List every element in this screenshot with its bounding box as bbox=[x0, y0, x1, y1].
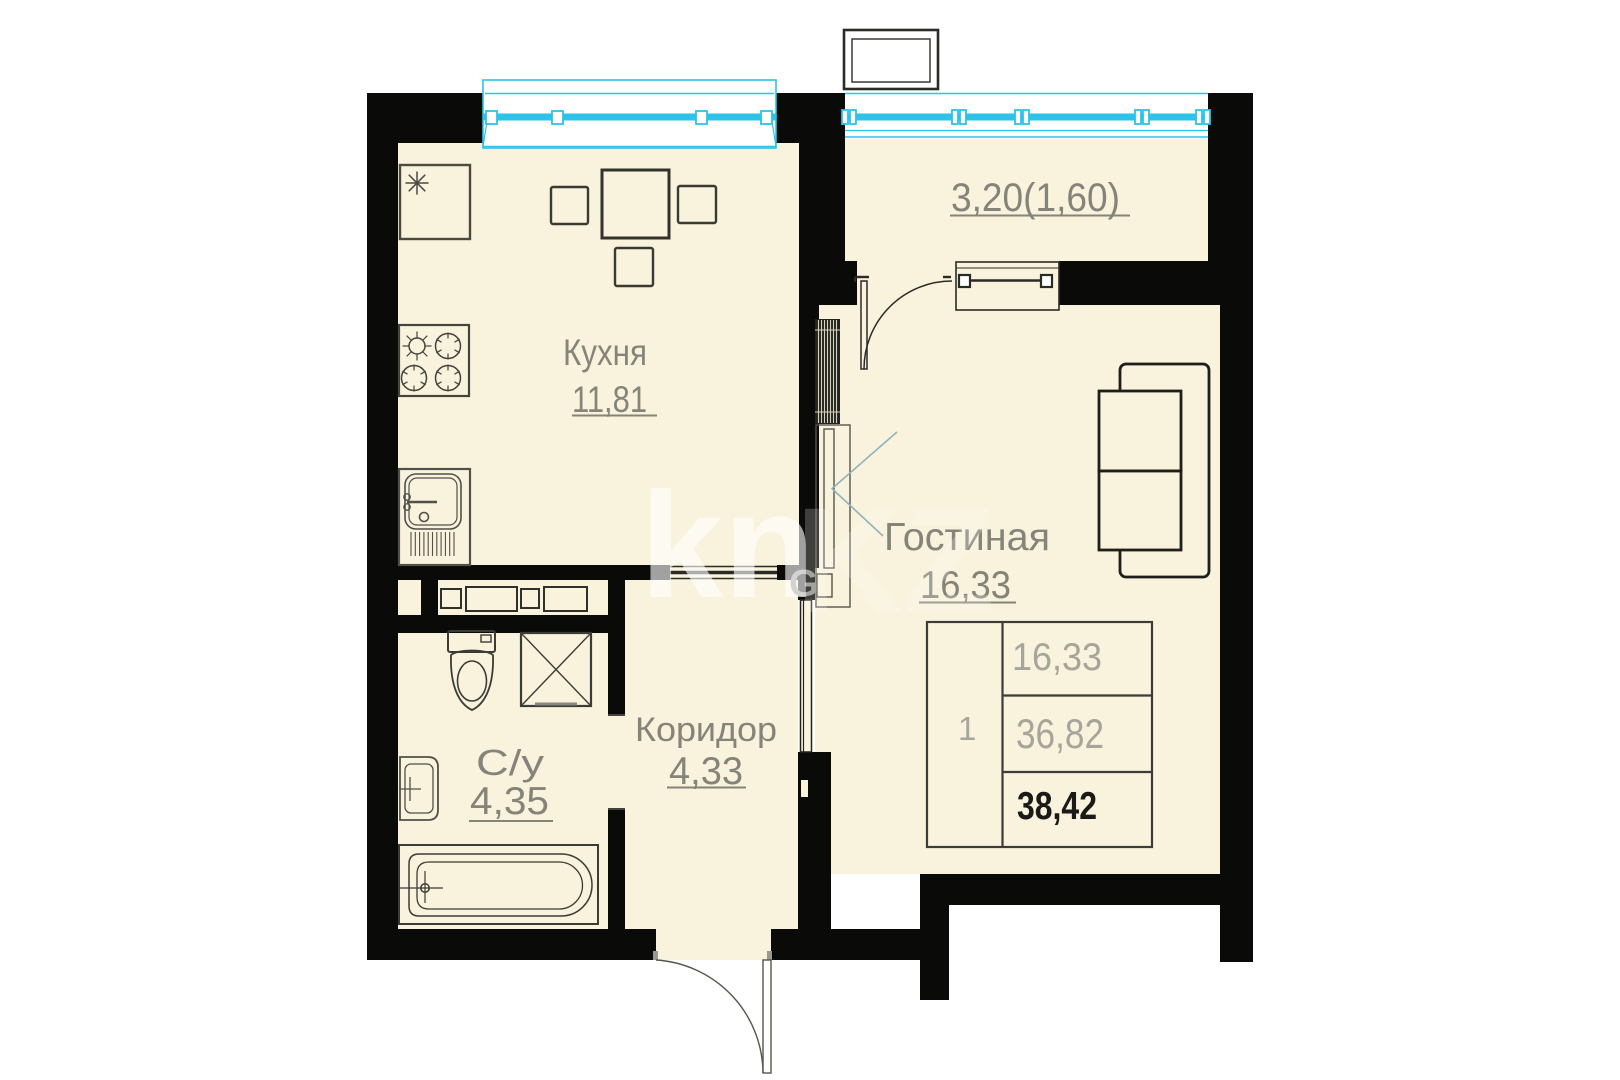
svg-text:38,42: 38,42 bbox=[1017, 785, 1097, 828]
svg-text:1: 1 bbox=[958, 710, 976, 747]
svg-text:3,20(1,60): 3,20(1,60) bbox=[951, 176, 1120, 220]
svg-text:С/у: С/у bbox=[476, 742, 544, 783]
svg-text:16,33: 16,33 bbox=[1012, 636, 1102, 679]
svg-text:Кухня: Кухня bbox=[563, 332, 647, 373]
svg-text:11,81: 11,81 bbox=[572, 379, 647, 420]
svg-text:4,35: 4,35 bbox=[470, 780, 549, 823]
svg-text:36,82: 36,82 bbox=[1016, 710, 1104, 757]
svg-text:KZ: KZ bbox=[795, 476, 995, 644]
svg-text:Коридор: Коридор bbox=[635, 711, 777, 749]
svg-text:kn: kn bbox=[640, 461, 815, 629]
